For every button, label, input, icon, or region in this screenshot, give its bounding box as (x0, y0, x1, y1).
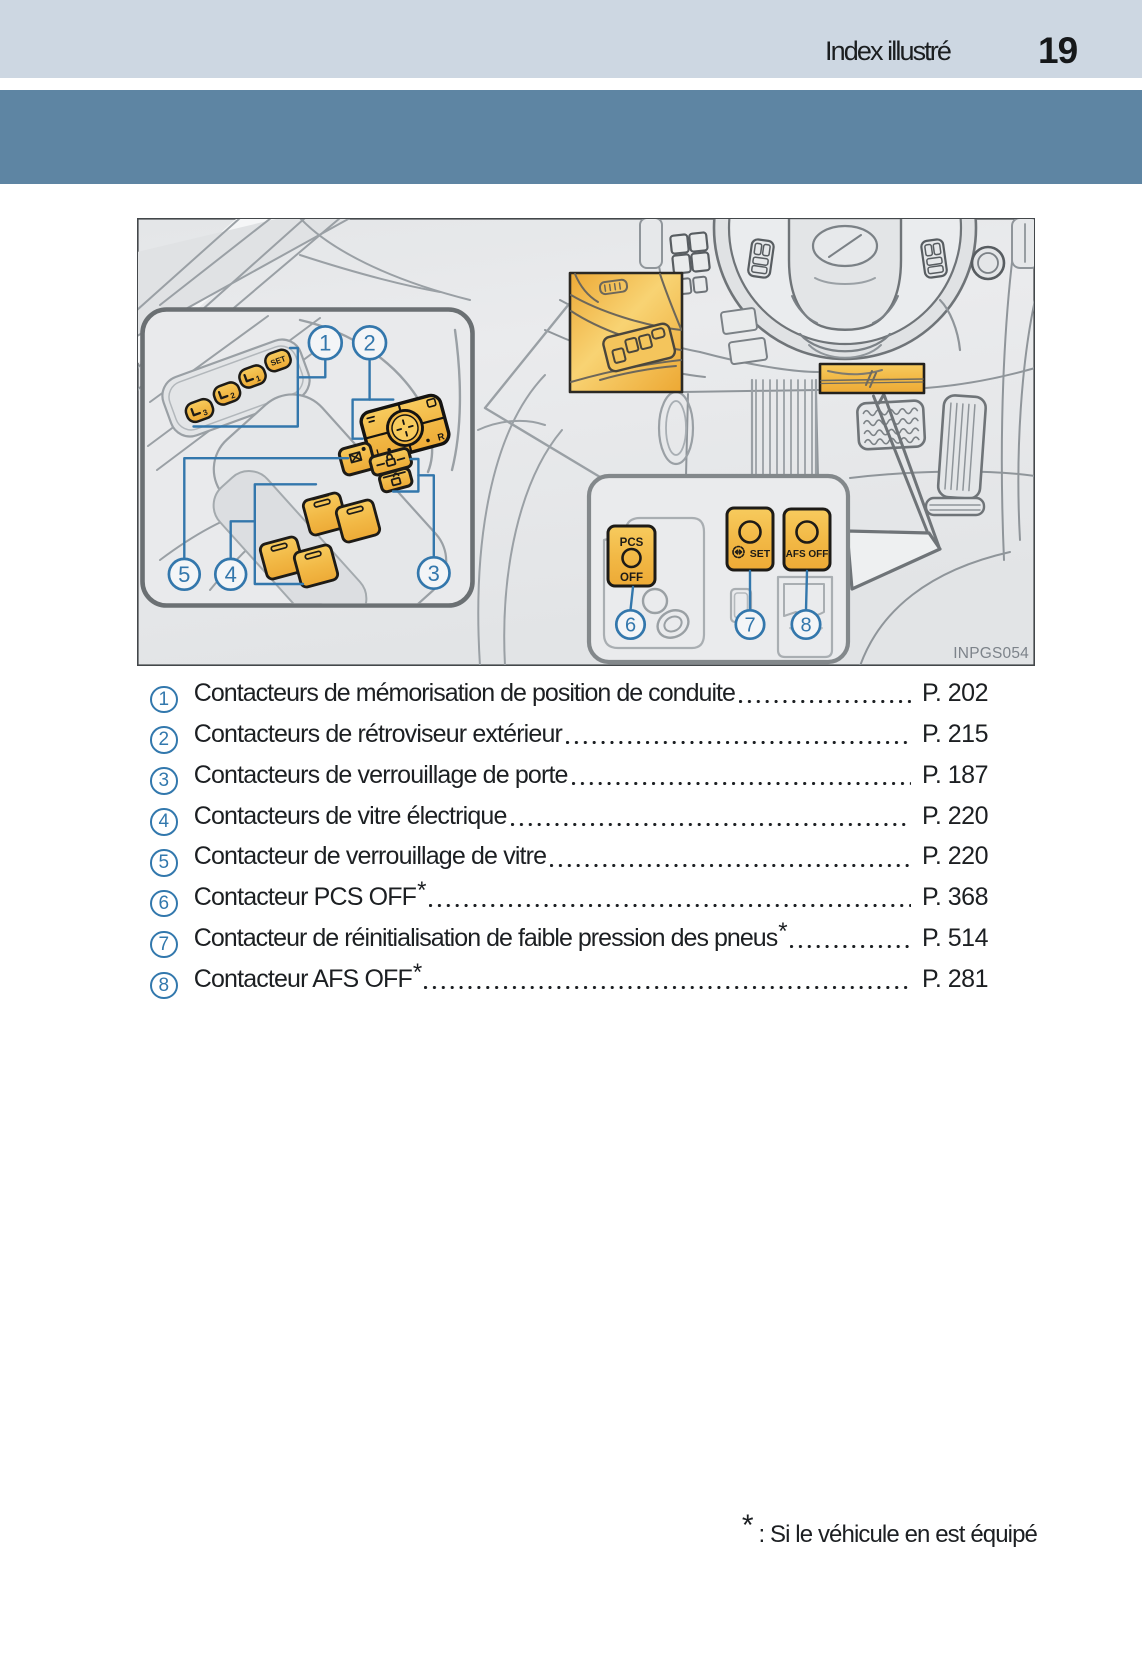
svg-text:2: 2 (363, 331, 375, 356)
svg-text:1: 1 (319, 331, 331, 356)
svg-text:6: 6 (625, 615, 636, 637)
svg-text:3: 3 (428, 561, 440, 586)
svg-text:AFS OFF: AFS OFF (786, 549, 829, 560)
svg-text:INPGS054: INPGS054 (953, 645, 1029, 662)
svg-text:7: 7 (744, 615, 755, 637)
svg-text:SET: SET (750, 548, 771, 560)
svg-text:5: 5 (178, 562, 190, 587)
svg-text:OFF: OFF (620, 572, 643, 584)
svg-text:PCS: PCS (620, 537, 644, 549)
svg-text:4: 4 (225, 562, 237, 587)
svg-text:8: 8 (800, 615, 811, 637)
